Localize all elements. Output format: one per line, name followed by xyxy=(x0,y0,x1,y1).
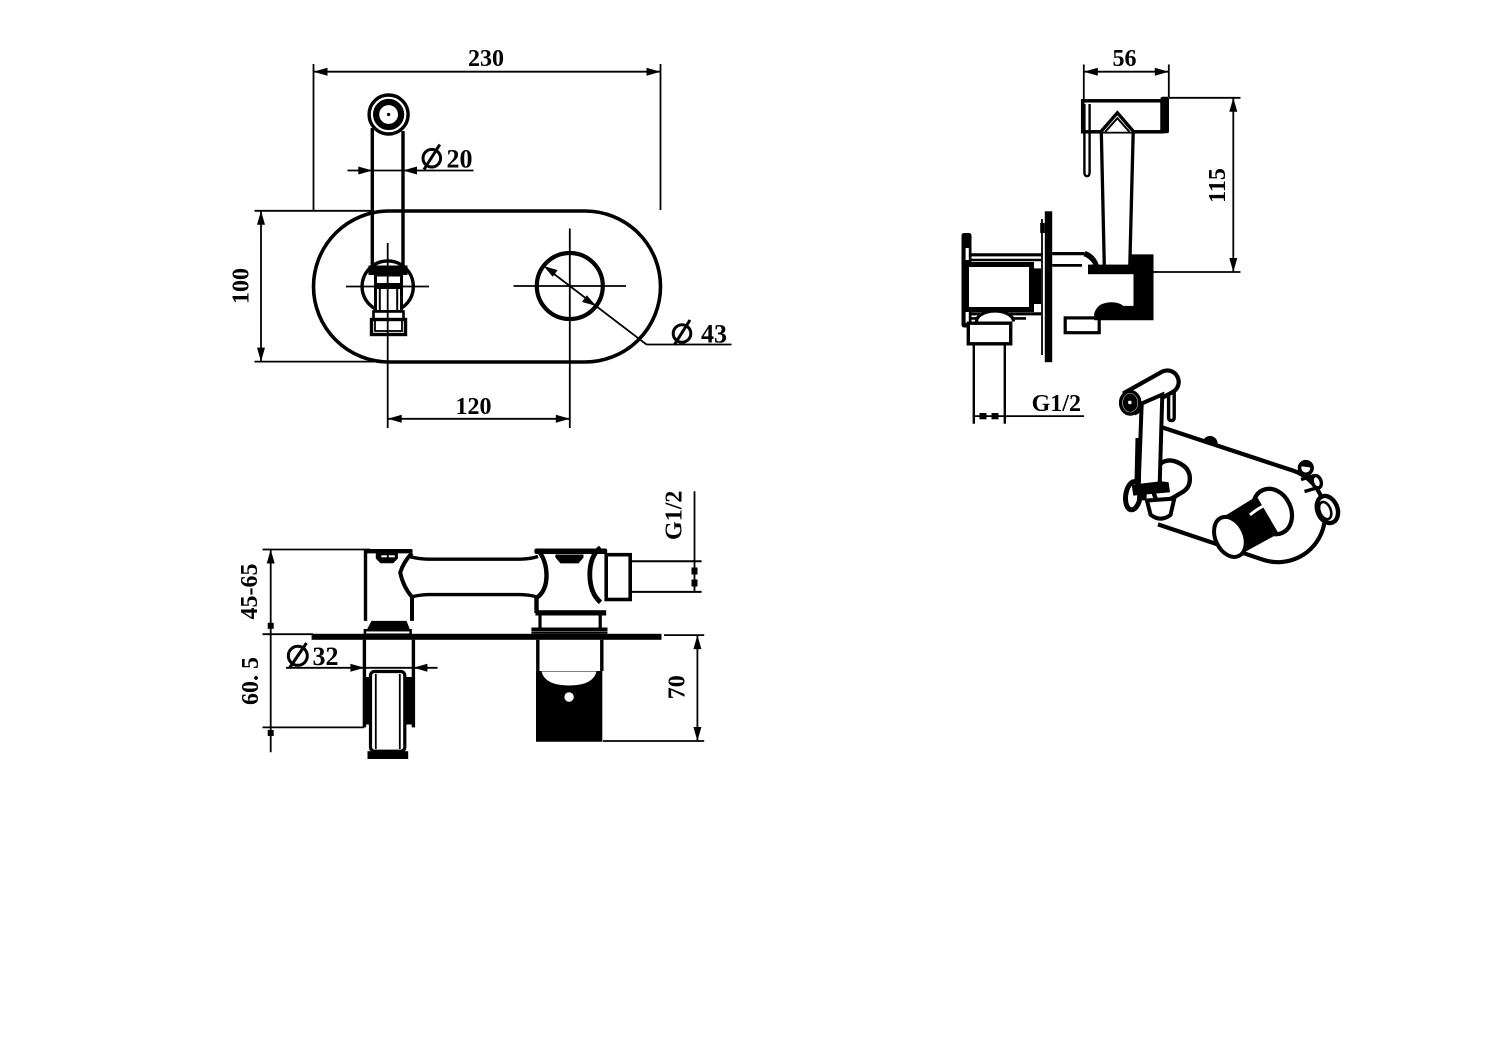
svg-text:43: 43 xyxy=(701,320,727,349)
svg-text:G1/2: G1/2 xyxy=(1032,391,1081,417)
svg-text:G1/2: G1/2 xyxy=(662,491,688,540)
svg-text:120: 120 xyxy=(456,394,492,420)
svg-text:70: 70 xyxy=(665,675,691,699)
svg-text:100: 100 xyxy=(229,268,255,304)
svg-text:20: 20 xyxy=(447,145,473,174)
svg-text:115: 115 xyxy=(1205,168,1231,203)
svg-text:45-65: 45-65 xyxy=(237,564,263,620)
svg-text:230: 230 xyxy=(468,46,504,72)
svg-text:60. 5: 60. 5 xyxy=(238,657,264,705)
svg-text:32: 32 xyxy=(313,642,339,671)
svg-text:56: 56 xyxy=(1113,46,1137,72)
